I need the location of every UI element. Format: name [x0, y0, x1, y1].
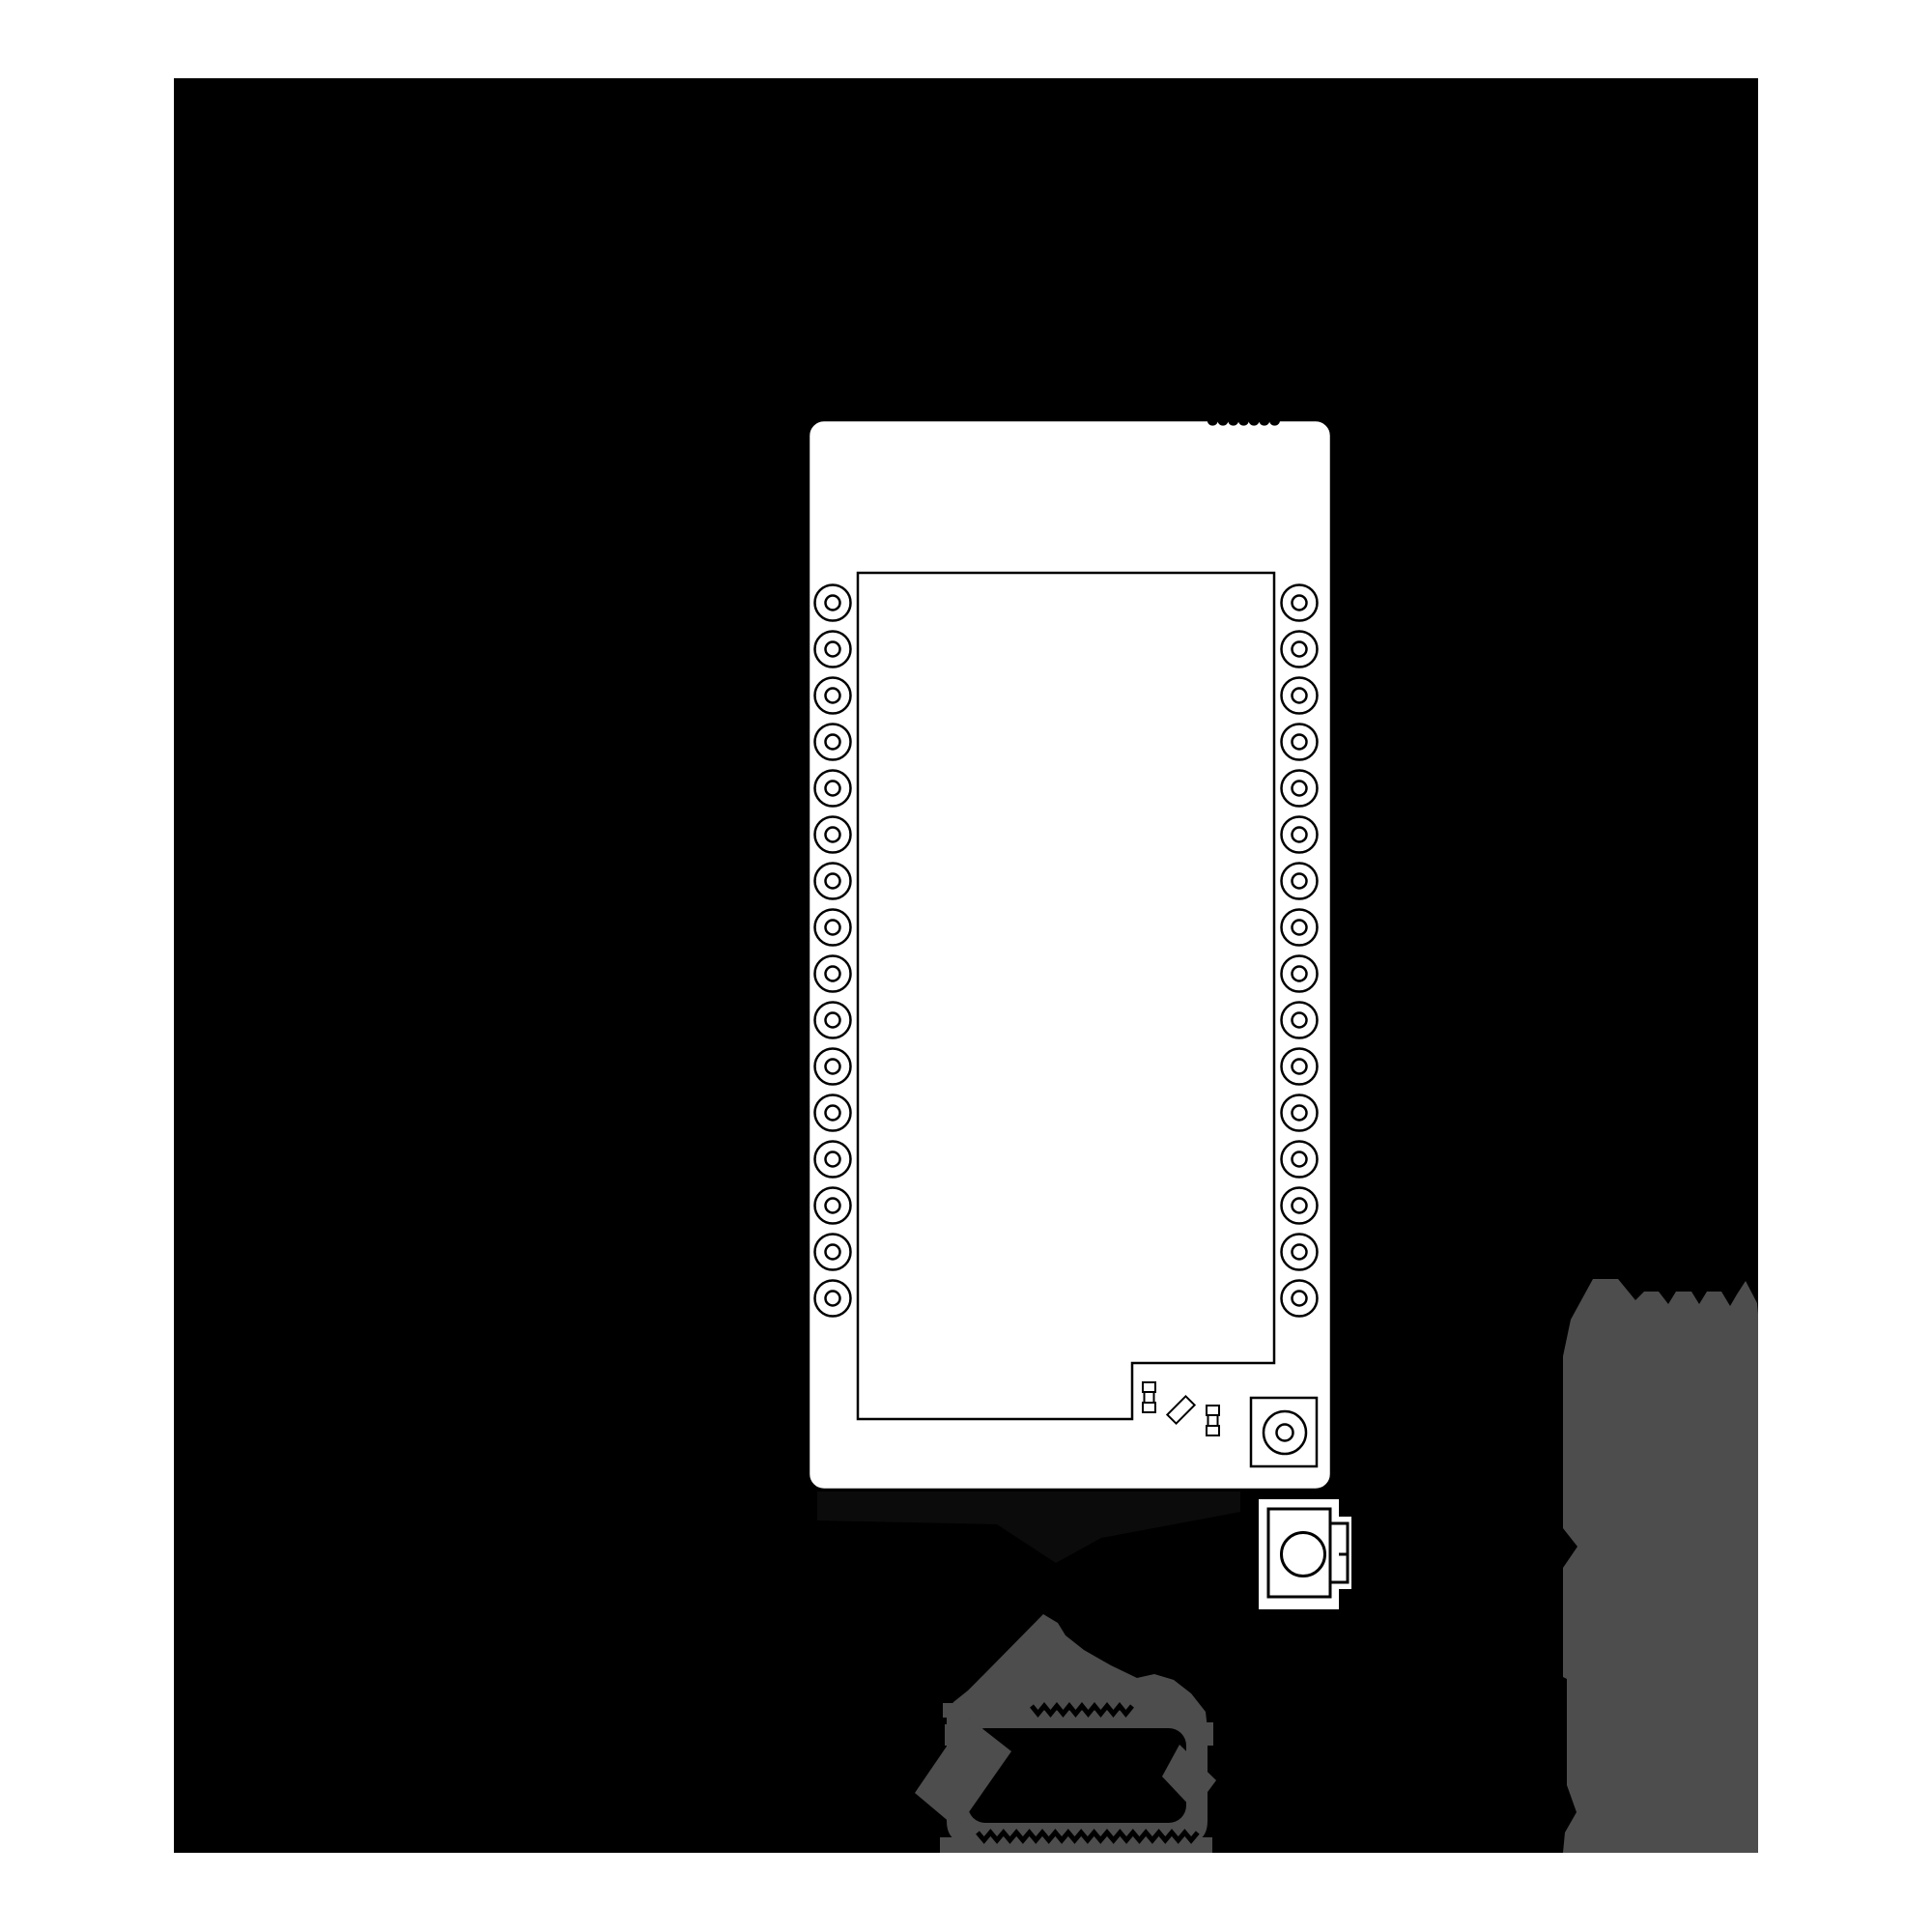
pad-drill — [826, 1060, 840, 1074]
emblem-window — [968, 1728, 1186, 1823]
pad-drill — [826, 1152, 840, 1167]
pad-drill — [1293, 967, 1307, 981]
castellation-notch — [1249, 414, 1260, 425]
castellation-notch — [1259, 414, 1269, 425]
castellation-notch — [1217, 414, 1228, 425]
pcb-footprint-diagram: Reset — [0, 0, 1932, 1932]
smd-passive-left — [1143, 1382, 1155, 1412]
pad-drill — [826, 967, 840, 981]
reset-button — [1259, 1499, 1351, 1609]
pad-drill — [826, 1106, 840, 1121]
silkscreen-reset-label: Reset — [1563, 1279, 1758, 1853]
smd-terminal — [1207, 1406, 1219, 1415]
smd-terminal — [1143, 1382, 1155, 1392]
pad-drill — [826, 921, 840, 935]
button-frame — [1268, 1509, 1330, 1597]
pad-drill — [1293, 596, 1307, 611]
emblem-fragment — [1198, 1722, 1213, 1746]
pad-drill — [1293, 642, 1307, 657]
pad-drill — [1293, 689, 1307, 703]
pad-drill — [1293, 921, 1307, 935]
castellation-notch — [1238, 414, 1249, 425]
pad-drill — [1293, 1245, 1307, 1260]
pad-drill — [1293, 1199, 1307, 1213]
pad-drill — [826, 781, 840, 796]
pad-drill — [826, 689, 840, 703]
emblem-fragment — [945, 1724, 956, 1746]
pad-drill — [1293, 781, 1307, 796]
pad-drill — [826, 1013, 840, 1028]
pad-drill — [1293, 828, 1307, 842]
pad-drill — [1293, 874, 1307, 889]
smd-terminal — [1207, 1426, 1219, 1435]
pad-drill — [826, 828, 840, 842]
diagram-stage: Reset — [0, 0, 1932, 1932]
pad-drill — [826, 874, 840, 889]
pad-drill — [1293, 735, 1307, 750]
smd-passive-right — [1207, 1406, 1219, 1435]
pad-drill — [1293, 1106, 1307, 1121]
pad-drill — [826, 1245, 840, 1260]
pad-drill — [826, 1292, 840, 1306]
castellation-notch — [1269, 414, 1280, 425]
pad-drill — [826, 735, 840, 750]
pad-drill — [826, 642, 840, 657]
ufl-center-pin — [1277, 1425, 1293, 1441]
reset-label-shape — [1563, 1279, 1758, 1853]
pad-drill — [826, 596, 840, 611]
module-board — [809, 420, 1331, 1490]
castellation-notch — [1207, 414, 1218, 425]
pad-drill — [826, 1199, 840, 1213]
pad-drill — [1293, 1152, 1307, 1167]
pad-drill — [1293, 1013, 1307, 1028]
pad-drill — [1293, 1060, 1307, 1074]
castellation-notch — [1228, 414, 1238, 425]
pad-drill — [1293, 1292, 1307, 1306]
emblem-fragment — [943, 1703, 956, 1718]
ufl-antenna-connector — [1251, 1398, 1317, 1466]
smd-terminal — [1143, 1403, 1155, 1412]
